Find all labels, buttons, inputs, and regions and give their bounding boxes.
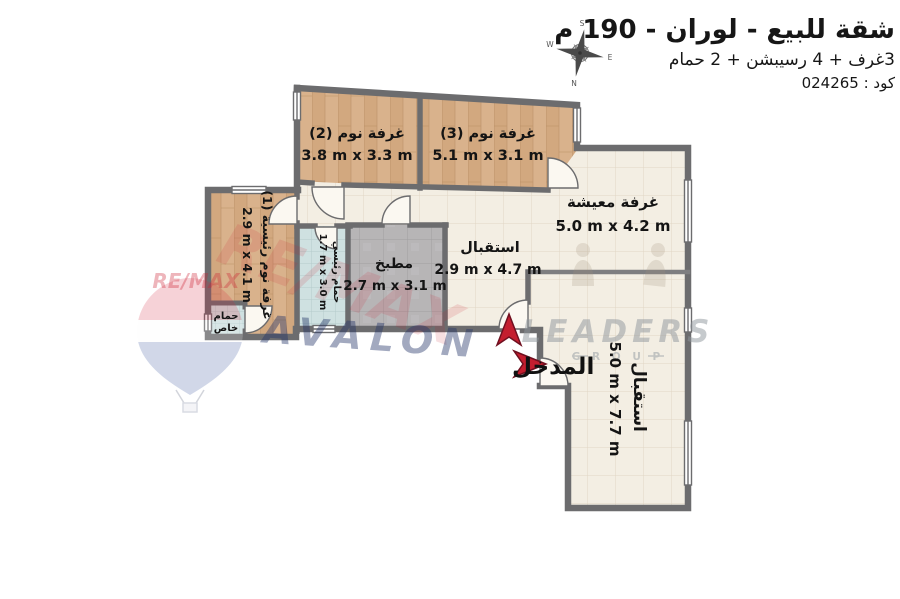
watermark-remax-balloon	[135, 276, 245, 412]
room-bedroom3-label: غرفة نوم (3)	[440, 126, 536, 142]
room-bedroom2-dims: 3.8 m x 3.3 m	[301, 148, 412, 164]
window-marker	[294, 92, 301, 120]
room-reception-small-dims: 2.9 m x 4.7 m	[434, 262, 541, 278]
listing-code: كود : 024265	[554, 74, 895, 93]
inner-wall	[297, 182, 312, 183]
room-master-bath-dims: 1.7 m x 3.0 m	[317, 234, 328, 311]
room-living-label: غرفة معيشة	[567, 193, 659, 211]
window-marker	[574, 108, 581, 142]
room-bedroom3-dims: 5.1 m x 3.1 m	[432, 148, 543, 164]
room-kitchen-label: مطبخ	[375, 256, 413, 272]
room-master-bath-label: حمام رئيسي	[331, 241, 342, 303]
room-reception-large-dims: 5.0 m x 7.7 m	[606, 342, 624, 457]
room-private-bath-label-1: حمام	[214, 311, 239, 322]
listing-title-block: شقة للبيع - لوران - 190 م 3غرف + 4 رسيبش…	[554, 14, 895, 93]
room-reception-large-label: استقبال	[629, 362, 649, 432]
window-marker	[685, 180, 692, 242]
listing-title: شقة للبيع - لوران - 190 م	[554, 14, 895, 47]
room-reception-small-label: استقبال	[460, 240, 520, 256]
room-master-bedroom-dims: 2.9 m x 4.1 m	[240, 207, 255, 303]
room-living-dims: 5.0 m x 4.2 m	[556, 217, 671, 235]
room-bedroom2-label: غرفة نوم (2)	[309, 126, 405, 142]
floorplan-screenshot: RE/MAX RE/MAX AVALON LEADERS G R O U P غ…	[0, 0, 900, 599]
window-marker	[685, 421, 692, 485]
room-kitchen-dims: 2.7 m x 3.1 m	[343, 278, 446, 294]
entrance-label: المدخل	[512, 354, 594, 380]
listing-subtitle: 3غرف + 4 رسيبشن + 2 حمام	[554, 50, 895, 71]
room-master-bedroom-label: غرفة نوم رئيسية (1)	[259, 190, 275, 319]
balloon-basket	[183, 403, 197, 412]
room-private-bath-label-2: خاص	[214, 323, 238, 334]
compass-w-label: W	[546, 40, 554, 49]
